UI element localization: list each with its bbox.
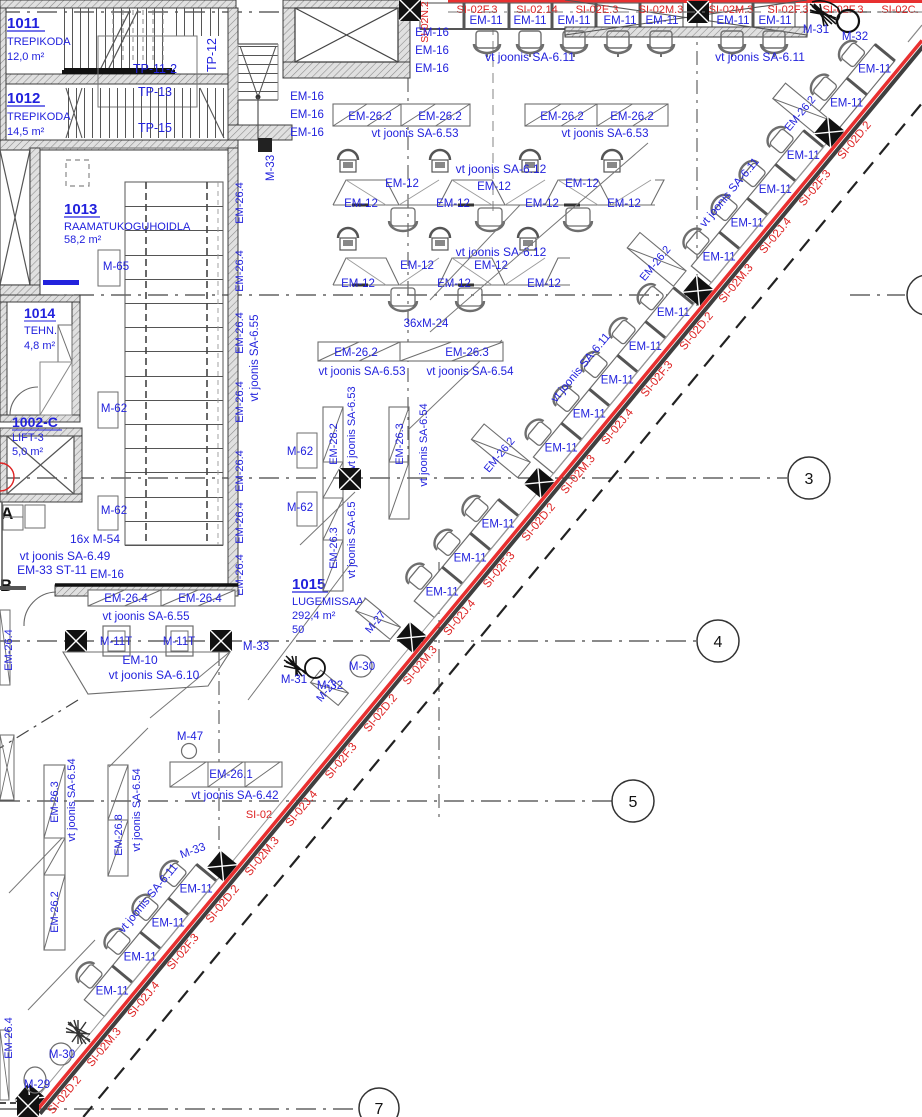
svg-text:EM-11: EM-11 bbox=[758, 15, 791, 27]
svg-text:M-31: M-31 bbox=[803, 24, 829, 36]
svg-text:EM-26.4: EM-26.4 bbox=[234, 250, 246, 292]
svg-text:EM-11: EM-11 bbox=[787, 150, 820, 162]
svg-text:EM-12: EM-12 bbox=[527, 278, 561, 290]
svg-text:EM-11: EM-11 bbox=[124, 952, 157, 964]
svg-text:M-62: M-62 bbox=[287, 502, 313, 514]
svg-text:M-32: M-32 bbox=[317, 680, 343, 692]
svg-text:16x M-54: 16x M-54 bbox=[70, 532, 120, 546]
svg-text:EM-11: EM-11 bbox=[513, 15, 546, 27]
svg-text:vt joonis SA-6.54: vt joonis SA-6.54 bbox=[131, 768, 143, 851]
svg-text:EM-26.8: EM-26.8 bbox=[113, 814, 125, 856]
svg-text:vt joonis SA-6.55: vt joonis SA-6.55 bbox=[249, 315, 261, 402]
svg-text:1012: 1012 bbox=[7, 90, 40, 107]
svg-text:EM-28.2: EM-28.2 bbox=[328, 423, 340, 465]
svg-text:TP-15: TP-15 bbox=[138, 121, 172, 135]
svg-text:M-47: M-47 bbox=[177, 731, 203, 743]
svg-text:4,8 m²: 4,8 m² bbox=[24, 340, 56, 352]
svg-text:EM-11: EM-11 bbox=[180, 884, 213, 896]
svg-text:vt joonis SA-6.12: vt joonis SA-6.12 bbox=[456, 245, 547, 259]
svg-text:M-29: M-29 bbox=[24, 1079, 50, 1091]
svg-text:EM-26.3: EM-26.3 bbox=[394, 423, 406, 465]
svg-text:EM-26.2: EM-26.2 bbox=[334, 347, 377, 359]
svg-text:LIFT-3: LIFT-3 bbox=[12, 432, 44, 444]
svg-text:EM-11: EM-11 bbox=[603, 15, 636, 27]
svg-text:EM-12: EM-12 bbox=[607, 198, 641, 210]
svg-text:M-62: M-62 bbox=[101, 403, 127, 415]
svg-text:EM-16: EM-16 bbox=[415, 63, 449, 75]
svg-text:vt joonis SA-6.53: vt joonis SA-6.53 bbox=[562, 128, 649, 140]
svg-text:EM-16: EM-16 bbox=[290, 109, 324, 121]
svg-text:EM-26.1: EM-26.1 bbox=[209, 769, 252, 781]
svg-text:EM-16: EM-16 bbox=[290, 91, 324, 103]
svg-text:EM-12: EM-12 bbox=[565, 178, 599, 190]
svg-text:EM-11: EM-11 bbox=[858, 64, 891, 76]
svg-text:EM-11: EM-11 bbox=[645, 15, 678, 27]
svg-text:EM-12: EM-12 bbox=[385, 178, 419, 190]
svg-text:vt joonis SA-6.53: vt joonis SA-6.53 bbox=[319, 366, 406, 378]
svg-text:5,0 m²: 5,0 m² bbox=[12, 446, 44, 458]
svg-text:1011: 1011 bbox=[7, 15, 40, 32]
svg-text:vt joonis SA-6.5: vt joonis SA-6.5 bbox=[346, 501, 358, 578]
svg-text:SI-02E.3: SI-02E.3 bbox=[576, 4, 619, 16]
svg-text:5: 5 bbox=[629, 794, 638, 811]
svg-text:TEHN.: TEHN. bbox=[24, 325, 57, 337]
svg-text:EM-26.4: EM-26.4 bbox=[178, 593, 222, 605]
svg-text:EM-26.4: EM-26.4 bbox=[234, 182, 246, 224]
svg-text:vt joonis SA-6.11: vt joonis SA-6.11 bbox=[485, 50, 575, 64]
svg-text:M-33: M-33 bbox=[243, 641, 269, 653]
svg-text:EM-11: EM-11 bbox=[426, 587, 459, 599]
svg-text:EM-11: EM-11 bbox=[601, 375, 634, 387]
svg-text:4: 4 bbox=[714, 634, 723, 651]
svg-text:EM-11: EM-11 bbox=[96, 985, 129, 997]
svg-text:EM-12: EM-12 bbox=[436, 198, 470, 210]
svg-text:EM-11: EM-11 bbox=[716, 15, 749, 27]
svg-text:RAAMATUKOGUHOIDLA: RAAMATUKOGUHOIDLA bbox=[64, 221, 191, 233]
svg-text:vt joonis SA-6.54: vt joonis SA-6.54 bbox=[418, 403, 430, 486]
svg-text:SI-02M.3: SI-02M.3 bbox=[709, 4, 754, 16]
svg-text:vt joonis SA-6.10: vt joonis SA-6.10 bbox=[109, 668, 200, 682]
svg-text:M-33: M-33 bbox=[265, 155, 277, 181]
svg-text:EM-26.3: EM-26.3 bbox=[445, 347, 488, 359]
svg-text:EM-26.2: EM-26.2 bbox=[348, 111, 391, 123]
svg-text:EM-26.2: EM-26.2 bbox=[418, 111, 461, 123]
svg-text:EM-26.3: EM-26.3 bbox=[328, 527, 340, 569]
svg-text:EM-26.4: EM-26.4 bbox=[3, 629, 15, 671]
svg-text:EM-11: EM-11 bbox=[152, 918, 185, 930]
svg-text:M-11T: M-11T bbox=[163, 636, 195, 648]
svg-text:7: 7 bbox=[375, 1101, 384, 1117]
svg-text:EM-12: EM-12 bbox=[344, 198, 378, 210]
svg-text:EM-12: EM-12 bbox=[474, 260, 508, 272]
svg-text:EM-26.4: EM-26.4 bbox=[104, 593, 148, 605]
svg-text:EM-16: EM-16 bbox=[415, 27, 449, 39]
svg-text:EM-26.4: EM-26.4 bbox=[234, 502, 246, 544]
svg-text:EM-12: EM-12 bbox=[400, 260, 434, 272]
svg-text:EM-33 ST-11: EM-33 ST-11 bbox=[17, 563, 87, 577]
svg-text:vt joonis SA-6.53: vt joonis SA-6.53 bbox=[346, 386, 358, 469]
svg-text:EM-11: EM-11 bbox=[454, 553, 487, 565]
svg-text:SI-02: SI-02 bbox=[246, 809, 272, 821]
svg-text:1002-C: 1002-C bbox=[12, 414, 58, 430]
svg-text:1013: 1013 bbox=[64, 201, 97, 218]
svg-text:M-62: M-62 bbox=[287, 446, 313, 458]
svg-text:1014: 1014 bbox=[24, 305, 55, 321]
svg-text:TREPIKODA: TREPIKODA bbox=[7, 111, 71, 123]
svg-text:EM-11: EM-11 bbox=[731, 218, 764, 230]
svg-text:vt joonis SA-6.54: vt joonis SA-6.54 bbox=[66, 758, 78, 841]
svg-text:EM-16: EM-16 bbox=[90, 569, 124, 581]
svg-text:vt joonis SA-6.12: vt joonis SA-6.12 bbox=[456, 162, 547, 176]
svg-text:EM-26.3: EM-26.3 bbox=[49, 781, 61, 823]
svg-text:SI-02.14: SI-02.14 bbox=[516, 4, 558, 16]
svg-text:SI-02M.3: SI-02M.3 bbox=[639, 4, 684, 16]
svg-text:vt joonis SA-6.55: vt joonis SA-6.55 bbox=[103, 611, 190, 623]
svg-text:TP-12: TP-12 bbox=[205, 38, 219, 72]
svg-text:EM-11: EM-11 bbox=[703, 252, 736, 264]
svg-text:3: 3 bbox=[805, 471, 814, 488]
svg-text:EM-26.2: EM-26.2 bbox=[540, 111, 583, 123]
svg-text:vt joonis SA-6.49: vt joonis SA-6.49 bbox=[20, 549, 111, 563]
svg-text:EM-26.4: EM-26.4 bbox=[3, 1017, 15, 1059]
svg-text:EM-11: EM-11 bbox=[557, 15, 590, 27]
svg-text:EM-26.2: EM-26.2 bbox=[49, 891, 61, 933]
svg-text:EM-16: EM-16 bbox=[415, 45, 449, 57]
svg-text:EM-11: EM-11 bbox=[759, 184, 792, 196]
svg-text:TP-11-2: TP-11-2 bbox=[133, 62, 177, 76]
svg-text:TREPIKODA: TREPIKODA bbox=[7, 36, 71, 48]
svg-text:EM-11: EM-11 bbox=[573, 409, 606, 421]
svg-text:M-11T: M-11T bbox=[100, 636, 132, 648]
svg-text:EM-11: EM-11 bbox=[545, 443, 578, 455]
svg-text:50: 50 bbox=[292, 624, 304, 636]
svg-text:SI-02F.3: SI-02F.3 bbox=[457, 4, 498, 16]
svg-text:EM-26.4: EM-26.4 bbox=[234, 381, 246, 423]
svg-text:EM-16: EM-16 bbox=[290, 127, 324, 139]
svg-text:14,5 m²: 14,5 m² bbox=[7, 126, 45, 138]
svg-text:EM-26.2: EM-26.2 bbox=[610, 111, 653, 123]
svg-text:TP-13: TP-13 bbox=[138, 85, 172, 99]
svg-text:vt joonis SA-6.54: vt joonis SA-6.54 bbox=[427, 366, 515, 378]
svg-text:EM-11: EM-11 bbox=[830, 98, 863, 110]
svg-text:M-30: M-30 bbox=[49, 1049, 75, 1061]
svg-text:LUGEMISSAAL: LUGEMISSAAL bbox=[292, 596, 370, 608]
svg-text:EM-11: EM-11 bbox=[657, 307, 690, 319]
svg-text:SI-02F.3: SI-02F.3 bbox=[768, 4, 809, 16]
svg-text:292,4 m²: 292,4 m² bbox=[292, 610, 336, 622]
svg-text:58,2 m²: 58,2 m² bbox=[64, 234, 102, 246]
svg-text:EM-11: EM-11 bbox=[629, 341, 662, 353]
svg-text:12,0 m²: 12,0 m² bbox=[7, 51, 45, 63]
svg-text:EM-11: EM-11 bbox=[482, 519, 515, 531]
svg-text:vt joonis SA-6.53: vt joonis SA-6.53 bbox=[372, 128, 459, 140]
svg-text:EM-12: EM-12 bbox=[525, 198, 559, 210]
svg-text:EM-12: EM-12 bbox=[341, 278, 375, 290]
svg-text:1015: 1015 bbox=[292, 576, 325, 593]
svg-text:vt joonis SA-6.11: vt joonis SA-6.11 bbox=[715, 50, 805, 64]
svg-text:M-65: M-65 bbox=[103, 261, 129, 273]
svg-text:EM-26.4: EM-26.4 bbox=[234, 312, 246, 354]
svg-text:EM-12: EM-12 bbox=[477, 181, 511, 193]
svg-text:M-30: M-30 bbox=[349, 661, 375, 673]
svg-text:EM-12: EM-12 bbox=[437, 278, 471, 290]
svg-text:vt joonis SA-6.42: vt joonis SA-6.42 bbox=[192, 790, 279, 802]
svg-text:M-31: M-31 bbox=[281, 674, 307, 686]
svg-text:M-62: M-62 bbox=[101, 505, 127, 517]
svg-text:36xM-24: 36xM-24 bbox=[404, 318, 449, 330]
svg-text:EM-10: EM-10 bbox=[122, 653, 158, 667]
svg-text:SI-02C.: SI-02C. bbox=[881, 4, 918, 16]
svg-text:EM-11: EM-11 bbox=[469, 15, 502, 27]
svg-text:EM-26.4: EM-26.4 bbox=[234, 450, 246, 492]
